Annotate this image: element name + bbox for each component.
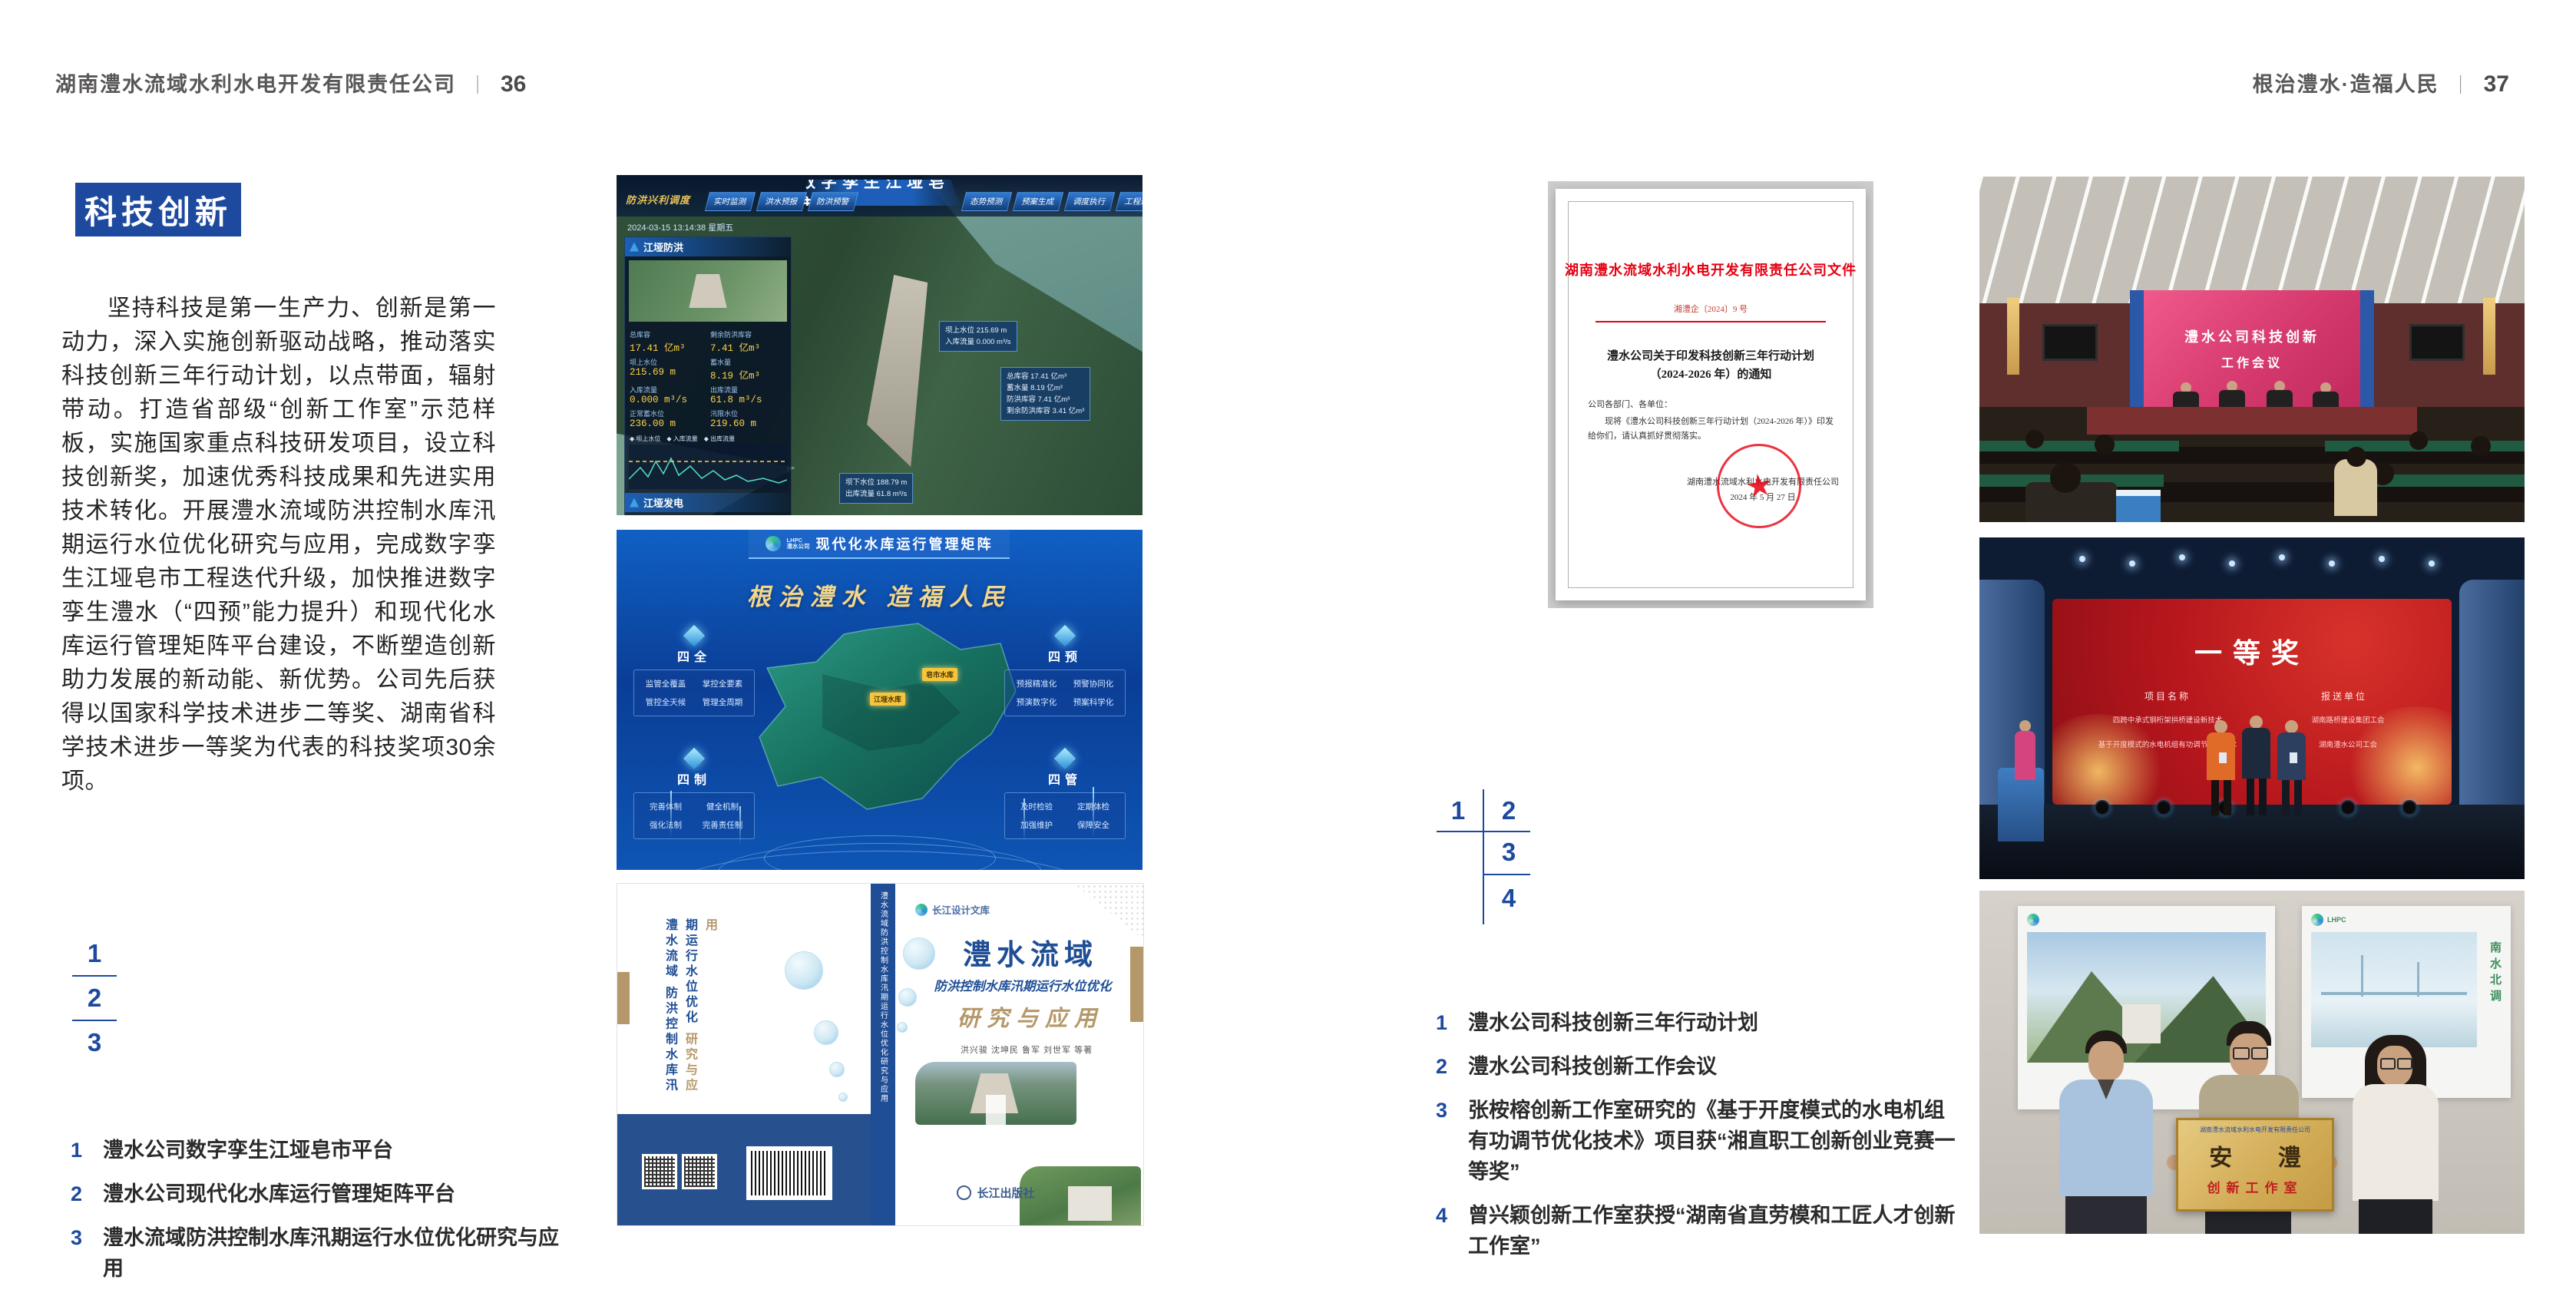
- caption-item: 1 澧水公司数字孪生江垭皂市平台: [71, 1135, 570, 1165]
- sail-icon: [630, 498, 639, 508]
- overlay-chip-downstream: 坝下水位 188.79 m 出库流量 61.8 m³/s: [839, 473, 913, 504]
- trophy: [2290, 752, 2297, 763]
- audience-head: [2409, 431, 2428, 450]
- tab: 洪水预报: [756, 192, 807, 211]
- green-table-strip: [1979, 441, 2179, 451]
- stage-light: [2179, 554, 2185, 560]
- document-body: 现将《澧水公司科技创新三年行动计划（2024-2026 年）》印发给你们，请认真…: [1588, 415, 1834, 444]
- stat-value: 219.60 m: [710, 418, 786, 429]
- panel-item: 预警协同化: [1066, 678, 1120, 689]
- caption-text: 澧水公司科技创新三年行动计划: [1468, 1007, 1758, 1038]
- matrix-panel-siguan: 四管 及时检验 定期体检 加强维护 保障安全: [1004, 751, 1126, 839]
- stat-cell: 坝上水位215.69 m: [630, 357, 706, 382]
- stat-label: 剩余防洪库容: [710, 329, 786, 339]
- winner-leg: [2294, 780, 2302, 815]
- stage-light: [2229, 560, 2235, 567]
- stat-label: 坝上水位: [630, 357, 706, 367]
- right-header-title: 根治澧水·造福人民: [2253, 73, 2439, 96]
- left-figure-index: 1 2 3: [72, 938, 117, 1058]
- panel-item: 健全机制: [696, 801, 749, 812]
- bridge-pylon: [2417, 962, 2419, 997]
- water-droplet: [829, 1062, 845, 1077]
- stat-cell: 汛限水位219.60 m: [710, 408, 786, 429]
- panel-items: 及时检验 定期体检 加强维护 保障安全: [1004, 792, 1126, 839]
- screen-side-panel: [2130, 290, 2144, 407]
- caption-item: 3 张桉榕创新工作室研究的《基于开度模式的水电机组有功调节优化技术》项目获“湘直…: [1436, 1095, 1966, 1187]
- poster-vertical-text: 南水北调: [2487, 941, 2503, 1080]
- audience-head: [2346, 447, 2366, 467]
- back-cover-tan-bar: [617, 972, 630, 1024]
- panel-name: 四管: [1004, 769, 1126, 788]
- poster-logo: [2027, 914, 2275, 926]
- stage-light: [2129, 560, 2135, 567]
- chip-line: 出库流量 61.8 m³/s: [845, 488, 907, 500]
- stats-grid-2: 年发电量6.3000 亿度 年累计发电量1.2907 亿度 月累计发电量3359…: [625, 512, 791, 515]
- caption-item: 3 澧水流域防洪控制水库汛期运行水位优化研究与应用: [71, 1222, 570, 1284]
- company-name: 湖南澧水流域水利水电开发有限责任公司: [55, 73, 456, 96]
- qr-code: [682, 1154, 717, 1189]
- caption-number: 2: [1436, 1051, 1468, 1082]
- lhpc-logo-icon: [2027, 914, 2039, 926]
- ripple-ring: [672, 851, 1088, 870]
- left-page-number: 36: [501, 71, 526, 97]
- figure-index-1: 1: [1443, 795, 1473, 826]
- stage-column-right: [2459, 580, 2525, 833]
- presidium-figure: [2267, 390, 2293, 408]
- figure-matrix-platform: LHPC澧水公司 现代化水库运行管理矩阵 根治澧水 造福人民 皂市水库 江垭水库…: [617, 530, 1143, 870]
- panel-items: 监管全覆盖 掌控全要素 管控全天候 管理全周期: [633, 670, 755, 716]
- stage-light: [2079, 556, 2085, 562]
- figure-index-3: 3: [72, 1027, 117, 1058]
- chip-line: 坝下水位 188.79 m: [845, 477, 907, 488]
- caption-item: 1 澧水公司科技创新三年行动计划: [1436, 1007, 1966, 1038]
- light-pillar: [739, 806, 741, 845]
- brand-text: 长江设计文库: [932, 902, 990, 917]
- gold-light-pillar: [2007, 298, 2019, 375]
- water-level-chart: [629, 445, 787, 489]
- winner-suit: [2242, 728, 2270, 779]
- stat-cell: 入库流量0.000 m³/s: [630, 385, 706, 405]
- panel-name: 四制: [633, 769, 755, 788]
- stat-label: 汛限水位: [710, 408, 786, 418]
- figure-meeting-photo: 澧水公司科技创新 工作会议: [1979, 177, 2525, 522]
- caption-text: 澧水公司科技创新工作会议: [1468, 1051, 1717, 1082]
- document-red-rule: [1596, 321, 1826, 322]
- panel-header: 江垭防洪: [625, 237, 791, 256]
- screen-line-2: 工作会议: [2221, 352, 2283, 371]
- front-title-3: 研究与应用: [938, 1000, 1123, 1033]
- caption-text: 澧水公司数字孪生江垭皂市平台: [103, 1135, 393, 1165]
- floor-light-fixture: [2095, 800, 2110, 815]
- index-divider: [72, 975, 117, 977]
- tab: 态势预测: [961, 192, 1012, 211]
- magazine-spread: 湖南澧水流域水利水电开发有限责任公司｜36 科技创新 坚持科技是第一生产力、创新…: [0, 0, 2576, 1306]
- poster-logo-text: LHPC: [2327, 916, 2346, 924]
- floor-light-fixture: [2402, 800, 2417, 815]
- golden-glow: [2052, 714, 2168, 805]
- stage-light: [2429, 560, 2435, 567]
- trophy: [2219, 752, 2227, 763]
- stat-label: 入库流量: [630, 385, 706, 395]
- panel-items: 预报精准化 预警协同化 预演数字化 预案科学化: [1004, 670, 1126, 716]
- spillway-spray: [986, 1095, 1005, 1125]
- header-separator: ｜: [468, 75, 488, 96]
- caption-number: 4: [1436, 1200, 1468, 1231]
- winner-leg: [2224, 780, 2231, 815]
- stat-label: 出库流量: [710, 385, 786, 395]
- innovation-studio-plaque: 湖南澧水流域水利水电开发有限责任公司 安 澧 创新工作室: [2176, 1118, 2334, 1212]
- water-droplet: [814, 1020, 838, 1045]
- stage-light: [2279, 554, 2285, 560]
- document-title-line1: 澧水公司关于印发科技创新三年行动计划: [1580, 347, 1841, 365]
- poster-logo: LHPC: [2311, 914, 2511, 926]
- light-pillar: [1023, 798, 1025, 841]
- stat-cell: 正常蓄水位236.00 m: [630, 408, 706, 429]
- rostrum-table: [2087, 407, 2417, 435]
- index-divider: [72, 1020, 117, 1021]
- panel-name: 四全: [633, 646, 755, 665]
- overlay-chip-upstream: 坝上水位 215.69 m 入库流量 0.000 m³/s: [939, 321, 1017, 352]
- stat-label: 总库容: [630, 329, 706, 339]
- cube-icon: [683, 748, 705, 769]
- gold-light-pillar: [2483, 298, 2495, 375]
- chip-line: 总库容 17.41 亿m³: [1007, 371, 1084, 382]
- person-trousers: [2359, 1199, 2432, 1234]
- winner-leg: [2211, 780, 2219, 815]
- caption-number: 1: [71, 1135, 103, 1165]
- host-figure: [2015, 731, 2035, 780]
- document-title-line2: （2024-2026 年）的通知: [1580, 365, 1841, 384]
- floor-light-fixture: [2340, 800, 2356, 815]
- light-pillar: [670, 791, 672, 837]
- back-title-1: 澧水流域: [663, 918, 676, 980]
- person-face: [2088, 1041, 2124, 1081]
- back-cover-vertical-title: 澧水流域 防洪控制水库汛期运行水位优化 研究与应用: [660, 918, 719, 1099]
- chip-line: 坝上水位 215.69 m: [945, 325, 1011, 336]
- panel-item: 预案科学化: [1066, 696, 1120, 708]
- front-title-1: 澧水流域: [931, 931, 1130, 973]
- stage-light: [2329, 560, 2335, 567]
- publisher-row: 长江出版社: [915, 1185, 1076, 1201]
- document-sheet: 湖南澧水流域水利水电开发有限责任公司文件 湘澧企〔2024〕9 号 澧水公司关于…: [1556, 189, 1866, 600]
- right-page-number: 37: [2484, 71, 2509, 97]
- panel-item: 管控全天候: [639, 696, 693, 708]
- stat-value: 236.00 m: [630, 418, 706, 429]
- stat-cell: 剩余防洪库容7.41 亿m³: [710, 329, 786, 354]
- chip-line: 入库流量 0.000 m³/s: [945, 336, 1011, 348]
- caption-number: 2: [71, 1179, 103, 1209]
- header-separator: ｜: [2452, 75, 2472, 96]
- glasses-lens: [2397, 1058, 2412, 1070]
- front-dam-photo: [915, 1062, 1076, 1125]
- stat-value: 0.000 m³/s: [630, 395, 706, 405]
- front-brand: 长江设计文库: [915, 902, 990, 917]
- dam-shape: [689, 274, 726, 309]
- caption-item: 2 澧水公司现代化水库运行管理矩阵平台: [71, 1179, 570, 1209]
- panel-item: 预报精准化: [1010, 678, 1063, 689]
- watershed-map: [730, 620, 1030, 828]
- audience-head: [2025, 430, 2044, 448]
- figure-index-1: 1: [72, 938, 117, 969]
- dashboard-corner-label: 防洪兴利调度: [626, 192, 690, 207]
- caption-text: 澧水公司现代化水库运行管理矩阵平台: [103, 1179, 455, 1209]
- tab: 实时监测: [705, 192, 756, 211]
- winner-head: [2285, 720, 2298, 733]
- document-number: 湘澧企〔2024〕9 号: [1556, 303, 1866, 315]
- water-droplet: [838, 1093, 848, 1102]
- light-pillar: [1093, 787, 1094, 837]
- front-title-2: 防洪控制水库汛期运行水位优化: [908, 976, 1138, 994]
- caption-number: 3: [1436, 1095, 1468, 1126]
- stat-value: 215.69 m: [630, 367, 706, 378]
- screen-line-1: 澧水公司科技创新: [2184, 326, 2320, 346]
- panel-title: 江垭发电: [643, 495, 683, 510]
- caption-text: 曾兴颖创新工作室获授“湖南省直劳模和工匠人才创新工作室”: [1468, 1200, 1966, 1261]
- stat-cell: 总库容17.41 亿m³: [630, 329, 706, 354]
- publisher-name: 长江出版社: [977, 1185, 1034, 1201]
- cube-icon: [1054, 625, 1076, 646]
- water-droplet: [785, 951, 823, 990]
- award-screen-title: 一等奖: [2052, 631, 2452, 671]
- qr-code: [642, 1154, 677, 1189]
- sail-icon: [630, 243, 639, 252]
- meeting-ceiling: [1979, 177, 2525, 303]
- dam-thumbnail: [629, 260, 787, 322]
- winner-head: [2214, 720, 2227, 733]
- stat-value: 8.19 亿m³: [710, 367, 786, 382]
- panel-item: 完善责任制: [696, 819, 749, 831]
- plaque-company-line: 湖南澧水流域水利水电开发有限责任公司: [2178, 1126, 2332, 1134]
- panel-item: 及时检验: [1010, 801, 1063, 812]
- figure-book-cover: 澧水流域 防洪控制水库汛期运行水位优化 研究与应用 澧水流域防洪控制水库汛期运行…: [617, 883, 1144, 1226]
- wall-tv: [2409, 324, 2465, 361]
- index-horizontal-line: [1437, 831, 1530, 832]
- panel-header: 江垭发电: [625, 493, 791, 512]
- index-horizontal-line: [1483, 874, 1530, 875]
- column-header-project: 项目名称: [2106, 689, 2229, 703]
- winner-leg: [2282, 780, 2290, 815]
- overlay-chip-storage: 总库容 17.41 亿m³ 蓄水量 8.19 亿m³ 防洪库容 7.41 亿m³…: [1000, 367, 1090, 421]
- dashboard-timestamp: 2024-03-15 13:14:38 星期五: [627, 221, 733, 233]
- figure-index-4: 4: [1493, 883, 1524, 914]
- index-vertical-line: [1483, 789, 1484, 924]
- water-droplet: [897, 1022, 908, 1033]
- bridge-deck: [2321, 992, 2467, 995]
- plaque-sub-text: 创新工作室: [2178, 1177, 2332, 1196]
- figure-official-document: 湖南澧水流域水利水电开发有限责任公司文件 湘澧企〔2024〕9 号 澧水公司关于…: [1548, 181, 1873, 608]
- barcode: [746, 1146, 832, 1200]
- caption-number: 1: [1436, 1007, 1468, 1038]
- intro-paragraph: 坚持科技是第一生产力、创新是第一动力，深入实施创新驱动战略，推动落实科技创新三年…: [61, 292, 496, 798]
- glasses-lens: [2251, 1047, 2268, 1060]
- audience-head: [2471, 436, 2491, 456]
- poster-bridge-scene: [2311, 932, 2477, 1047]
- glasses-lens: [2233, 1047, 2250, 1060]
- unit-row: 湖南路桥建设集团工会: [2283, 714, 2413, 725]
- spine-title: 澧水流域防洪控制水库汛期运行水位优化研究与应用: [878, 891, 889, 1103]
- matrix-panel-siquan: 四全 监管全覆盖 掌控全要素 管控全天候 管理全周期: [633, 628, 755, 716]
- publisher-logo-icon: [957, 1185, 971, 1200]
- matrix-slogan: 根治澧水 造福人民: [617, 577, 1143, 612]
- stats-grid: 总库容17.41 亿m³ 剩余防洪库容7.41 亿m³ 坝上水位215.69 m…: [625, 326, 791, 433]
- left-running-header: 湖南澧水流域水利水电开发有限责任公司｜36: [55, 68, 526, 98]
- chart-legend: ◆ 坝上水位 ◆ 入库流量 ◆ 出库流量: [625, 433, 791, 445]
- right-captions: 1 澧水公司科技创新三年行动计划 2 澧水公司科技创新工作会议 3 张桉榕创新工…: [1436, 1007, 1966, 1275]
- host-head: [2019, 720, 2031, 732]
- stat-label: 正常蓄水位: [630, 408, 706, 418]
- tab: 预案生成: [1013, 192, 1063, 211]
- tab: 防洪预警: [808, 192, 858, 211]
- audience-tan-coat: [2334, 459, 2377, 516]
- foreground-head: [2050, 462, 2081, 493]
- wall-tv: [2042, 324, 2098, 361]
- audience-head: [2095, 435, 2115, 455]
- winner-leg: [2247, 779, 2254, 815]
- dam-render: [816, 275, 985, 467]
- caption-item: 4 曾兴颖创新工作室获授“湖南省直劳模和工匠人才创新工作室”: [1436, 1200, 1966, 1261]
- lhpc-logo-icon: [2311, 914, 2323, 926]
- panel-item: 管理全周期: [696, 696, 749, 708]
- book-spine: 澧水流域防洪控制水库汛期运行水位优化研究与应用: [871, 884, 895, 1225]
- presidium-figure: [2313, 392, 2339, 408]
- stat-cell: 蓄水量8.19 亿m³: [710, 357, 786, 382]
- dashboard-tabs-right: 态势预测 预案生成 调度执行 工程巡检: [964, 192, 1143, 211]
- authors-line: 洪兴骏 沈坤民 鲁军 刘世军 等著: [923, 1043, 1130, 1056]
- caption-number: 3: [71, 1222, 103, 1253]
- changjiang-design-logo-icon: [915, 904, 928, 916]
- panel-item: 监管全覆盖: [639, 678, 693, 689]
- panel-item: 强化法制: [639, 819, 693, 831]
- document-red-header: 湖南澧水流域水利水电开发有限责任公司文件: [1556, 260, 1866, 279]
- panel-items: 完善体制 健全机制 强化法制 完善责任制: [633, 792, 755, 839]
- figure-index-3: 3: [1493, 837, 1524, 868]
- tab: 工程巡检: [1116, 192, 1143, 211]
- dam-shape: [2122, 1004, 2161, 1043]
- panel-item: 掌控全要素: [696, 678, 749, 689]
- caption-text: 张桉榕创新工作室研究的《基于开度模式的水电机组有功调节优化技术》项目获“湘直职工…: [1468, 1095, 1959, 1187]
- figure-index-2: 2: [72, 983, 117, 1013]
- figure-digital-twin-dashboard: 数字孪生江垭皂市 防洪兴利调度 实时监测 洪水预报 防洪预警 态势预测 预案生成…: [617, 175, 1143, 515]
- matrix-panel-siyu: 四预 预报精准化 预警协同化 预演数字化 预案科学化: [1004, 628, 1126, 716]
- map-marker-jiangya: 江垭水库: [870, 693, 905, 706]
- document-title: 澧水公司关于印发科技创新三年行动计划 （2024-2026 年）的通知: [1580, 347, 1841, 384]
- stat-cell: 出库流量61.8 m³/s: [710, 385, 786, 405]
- winner-leg: [2259, 779, 2267, 815]
- presidium-figure: [2219, 390, 2245, 408]
- stat-label: 蓄水量: [710, 357, 786, 367]
- left-captions: 1 澧水公司数字孪生江垭皂市平台 2 澧水公司现代化水库运行管理矩阵平台 3 澧…: [71, 1135, 570, 1297]
- stage-floor: [1979, 805, 2525, 879]
- figure-index-2: 2: [1493, 795, 1524, 826]
- plaque-main-text: 安 澧: [2178, 1139, 2332, 1172]
- panel-item: 加强维护: [1010, 819, 1063, 831]
- caption-item: 2 澧水公司科技创新工作会议: [1436, 1051, 1966, 1082]
- map-marker-zaoshi: 皂市水库: [922, 668, 957, 681]
- cube-icon: [1054, 748, 1076, 769]
- presidium-figure: [2173, 392, 2199, 408]
- person-white-tee: [2353, 1084, 2439, 1201]
- dashboard-left-panel: 江垭防洪 总库容17.41 亿m³ 剩余防洪库容7.41 亿m³ 坝上水位215…: [624, 236, 792, 515]
- person-trousers: [2065, 1196, 2147, 1234]
- chip-line: 防洪库容 7.41 亿m³: [1007, 394, 1084, 405]
- floor-light-fixture: [2156, 800, 2171, 815]
- lhpc-logo-text: LHPC澧水公司: [787, 537, 810, 551]
- chip-line: 蓄水量 8.19 亿m³: [1007, 382, 1084, 394]
- lhpc-logo-icon: [766, 536, 781, 551]
- winner-head: [2250, 716, 2263, 729]
- bridge-pylon: [2361, 955, 2363, 997]
- project-row: 四跨中承式钢桁架拱桥建设新技术: [2075, 714, 2260, 725]
- stat-value: 61.8 m³/s: [710, 395, 786, 405]
- matrix-titlebar: LHPC澧水公司 现代化水库运行管理矩阵: [749, 530, 1010, 559]
- tab: 调度执行: [1064, 192, 1115, 211]
- right-running-header: 根治澧水·造福人民｜37: [2253, 68, 2509, 98]
- stat-value: 17.41 亿m³: [630, 339, 706, 354]
- document-salutation: 公司各部门、各单位：: [1588, 398, 1834, 412]
- stage-light: [2379, 556, 2385, 562]
- panel-name: 四预: [1004, 646, 1126, 665]
- column-header-unit: 报送单位: [2283, 689, 2406, 703]
- right-figure-index: 1 2 3 4: [1437, 789, 1530, 924]
- figure-studio-group-photo: LHPC 南水北调 湖南澧水流域水利水电开发: [1979, 891, 2525, 1234]
- chip-line: 剩余防洪库容 3.41 亿m³: [1007, 405, 1084, 417]
- screen-side-panel: [2360, 290, 2374, 407]
- cube-icon: [683, 625, 705, 646]
- dashboard-tabs-left: 实时监测 洪水预报 防洪预警: [707, 192, 856, 211]
- panel-item: 预演数字化: [1010, 696, 1063, 708]
- section-title-badge: 科技创新: [75, 183, 241, 236]
- stat-value: 7.41 亿m³: [710, 339, 786, 354]
- matrix-panel-sizhi: 四制 完善体制 健全机制 强化法制 完善责任制: [633, 751, 755, 839]
- glasses-lens: [2380, 1058, 2396, 1070]
- panel-title: 江垭防洪: [643, 240, 683, 254]
- caption-text: 澧水流域防洪控制水库汛期运行水位优化研究与应用: [103, 1222, 570, 1284]
- tissue-box: [2116, 490, 2161, 522]
- panel-item: 完善体制: [639, 801, 693, 812]
- figure-award-ceremony-photo: 一等奖 项目名称 报送单位 四跨中承式钢桁架拱桥建设新技术 基于开度模式的水电机…: [1979, 537, 2525, 879]
- matrix-title: 现代化水库运行管理矩阵: [816, 534, 994, 554]
